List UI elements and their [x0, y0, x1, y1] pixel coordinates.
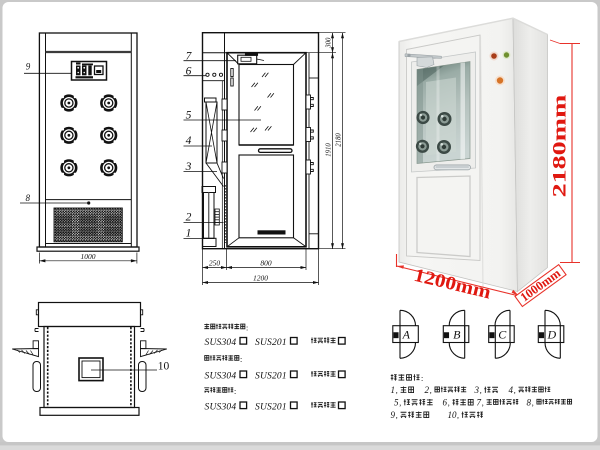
- svg-text:B: B: [453, 328, 461, 342]
- svg-text::: :: [240, 355, 242, 364]
- svg-text:2: 2: [186, 212, 192, 224]
- svg-text:,: ,: [399, 398, 401, 407]
- svg-text:1910: 1910: [325, 143, 332, 157]
- svg-text::: :: [421, 374, 423, 383]
- svg-text:10: 10: [158, 361, 170, 373]
- svg-text:2180mm: 2180mm: [549, 95, 570, 198]
- svg-text:,: ,: [396, 386, 398, 395]
- svg-text:SUS304: SUS304: [205, 403, 237, 413]
- svg-text:1: 1: [391, 385, 396, 395]
- svg-text:1: 1: [186, 228, 192, 240]
- svg-text:SUS201: SUS201: [255, 338, 287, 348]
- svg-text:1000: 1000: [81, 252, 96, 261]
- svg-text:SUS201: SUS201: [255, 372, 287, 382]
- svg-text:D: D: [546, 328, 556, 342]
- svg-text:,: ,: [430, 386, 432, 395]
- svg-text:3: 3: [474, 385, 480, 395]
- svg-text:,: ,: [448, 398, 450, 407]
- svg-text:300: 300: [325, 37, 332, 49]
- svg-text:10: 10: [448, 410, 458, 420]
- svg-text:SUS304: SUS304: [205, 372, 237, 382]
- svg-text:SUS201: SUS201: [255, 403, 287, 413]
- svg-text:C: C: [498, 328, 507, 342]
- svg-text:,: ,: [480, 386, 482, 395]
- svg-text:800: 800: [260, 259, 272, 268]
- svg-text:250: 250: [209, 259, 221, 268]
- svg-text:,: ,: [457, 411, 459, 420]
- svg-text::: :: [246, 324, 248, 333]
- svg-text:,: ,: [396, 411, 398, 420]
- svg-text:,: ,: [532, 398, 534, 407]
- svg-text:1200: 1200: [253, 274, 268, 283]
- svg-text:SUS304: SUS304: [205, 338, 237, 348]
- svg-text:8: 8: [26, 193, 31, 203]
- svg-text:4: 4: [186, 135, 192, 147]
- svg-text:,: ,: [514, 386, 516, 395]
- svg-text:,: ,: [482, 398, 484, 407]
- svg-text::: :: [234, 387, 236, 396]
- svg-text:A: A: [402, 328, 411, 342]
- svg-text:9: 9: [26, 62, 31, 72]
- svg-text:2180: 2180: [335, 133, 342, 147]
